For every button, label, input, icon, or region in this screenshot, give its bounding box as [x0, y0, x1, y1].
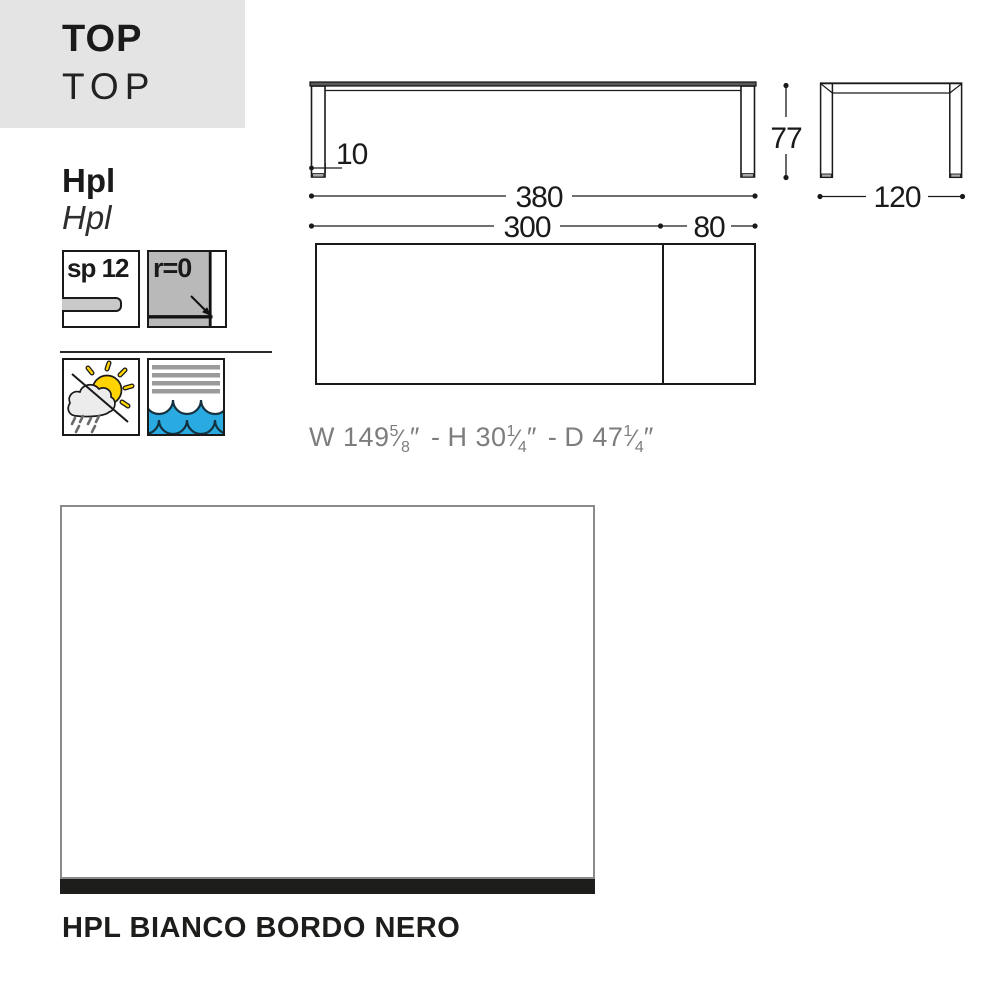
finish-name: HPL BIANCO BORDO NERO — [62, 912, 460, 945]
dim-label-120: 120 — [873, 181, 920, 214]
width-fraction: 5⁄8 — [390, 422, 410, 452]
separator: - — [548, 422, 558, 452]
dim-label-10: 10 — [336, 138, 368, 171]
dimension-table-length: 300 — [309, 211, 663, 244]
dim-label-80: 80 — [693, 211, 725, 244]
dimension-overall-length: 380 — [309, 181, 758, 214]
header-panel: TOP TOP — [0, 0, 245, 128]
raindrops — [72, 416, 99, 432]
dim-label-380: 380 — [515, 181, 562, 214]
height-fraction-denominator: 4 — [518, 439, 527, 456]
imperial-depth-value: D 47 — [564, 422, 623, 452]
front-view — [310, 82, 756, 177]
width-fraction-denominator: 8 — [401, 439, 410, 456]
front-right-leg — [741, 86, 755, 177]
material-name: Hpl — [62, 162, 115, 200]
marine-suitability-box — [147, 358, 225, 436]
inch-mark: ″ — [644, 422, 654, 452]
separator: - — [431, 422, 441, 452]
dimension-extension: 80 — [661, 211, 758, 244]
side-right-leg — [950, 83, 962, 177]
dim-label-300: 300 — [503, 211, 550, 244]
side-left-leg — [821, 83, 833, 177]
height-fraction: 1⁄4 — [506, 422, 526, 452]
top-view-outline — [315, 243, 756, 385]
product-title: TOP — [62, 18, 142, 61]
thickness-label: sp 12 — [67, 253, 129, 284]
sun-rain-icon — [64, 360, 138, 434]
imperial-height-value: H 30 — [447, 422, 506, 452]
inch-mark: ″ — [410, 422, 420, 452]
finish-swatch — [60, 505, 595, 879]
dimension-height: 77 — [770, 83, 802, 180]
material-name-italic: Hpl — [62, 199, 112, 237]
dimension-depth: 120 — [817, 181, 965, 214]
extension-divider-line — [662, 245, 664, 383]
panel-edge-icon — [62, 297, 122, 312]
divider-line — [60, 351, 272, 353]
product-title-secondary: TOP — [62, 66, 155, 108]
corner-radius-spec-box: r=0 — [147, 250, 227, 328]
front-tabletop — [310, 82, 756, 86]
waves-icon — [149, 360, 223, 434]
thickness-spec-box: sp 12 — [62, 250, 140, 328]
imperial-dimensions: W 1495⁄8″-H 301⁄4″-D 471⁄4″ — [309, 422, 658, 457]
technical-drawing: 10 380 300 80 — [300, 70, 1000, 245]
inch-mark: ″ — [527, 422, 537, 452]
imperial-width-value: W 149 — [309, 422, 390, 452]
radius-label: r=0 — [153, 253, 191, 284]
outdoor-suitability-box — [62, 358, 140, 436]
spec-sheet-page: TOP TOP Hpl Hpl sp 12 r=0 — [0, 0, 1000, 1000]
front-left-leg — [312, 86, 326, 177]
finish-swatch-black-edge — [60, 879, 595, 894]
depth-fraction-denominator: 4 — [635, 439, 644, 456]
side-view — [820, 83, 962, 177]
depth-fraction: 1⁄4 — [623, 422, 643, 452]
dim-label-77: 77 — [770, 122, 802, 155]
